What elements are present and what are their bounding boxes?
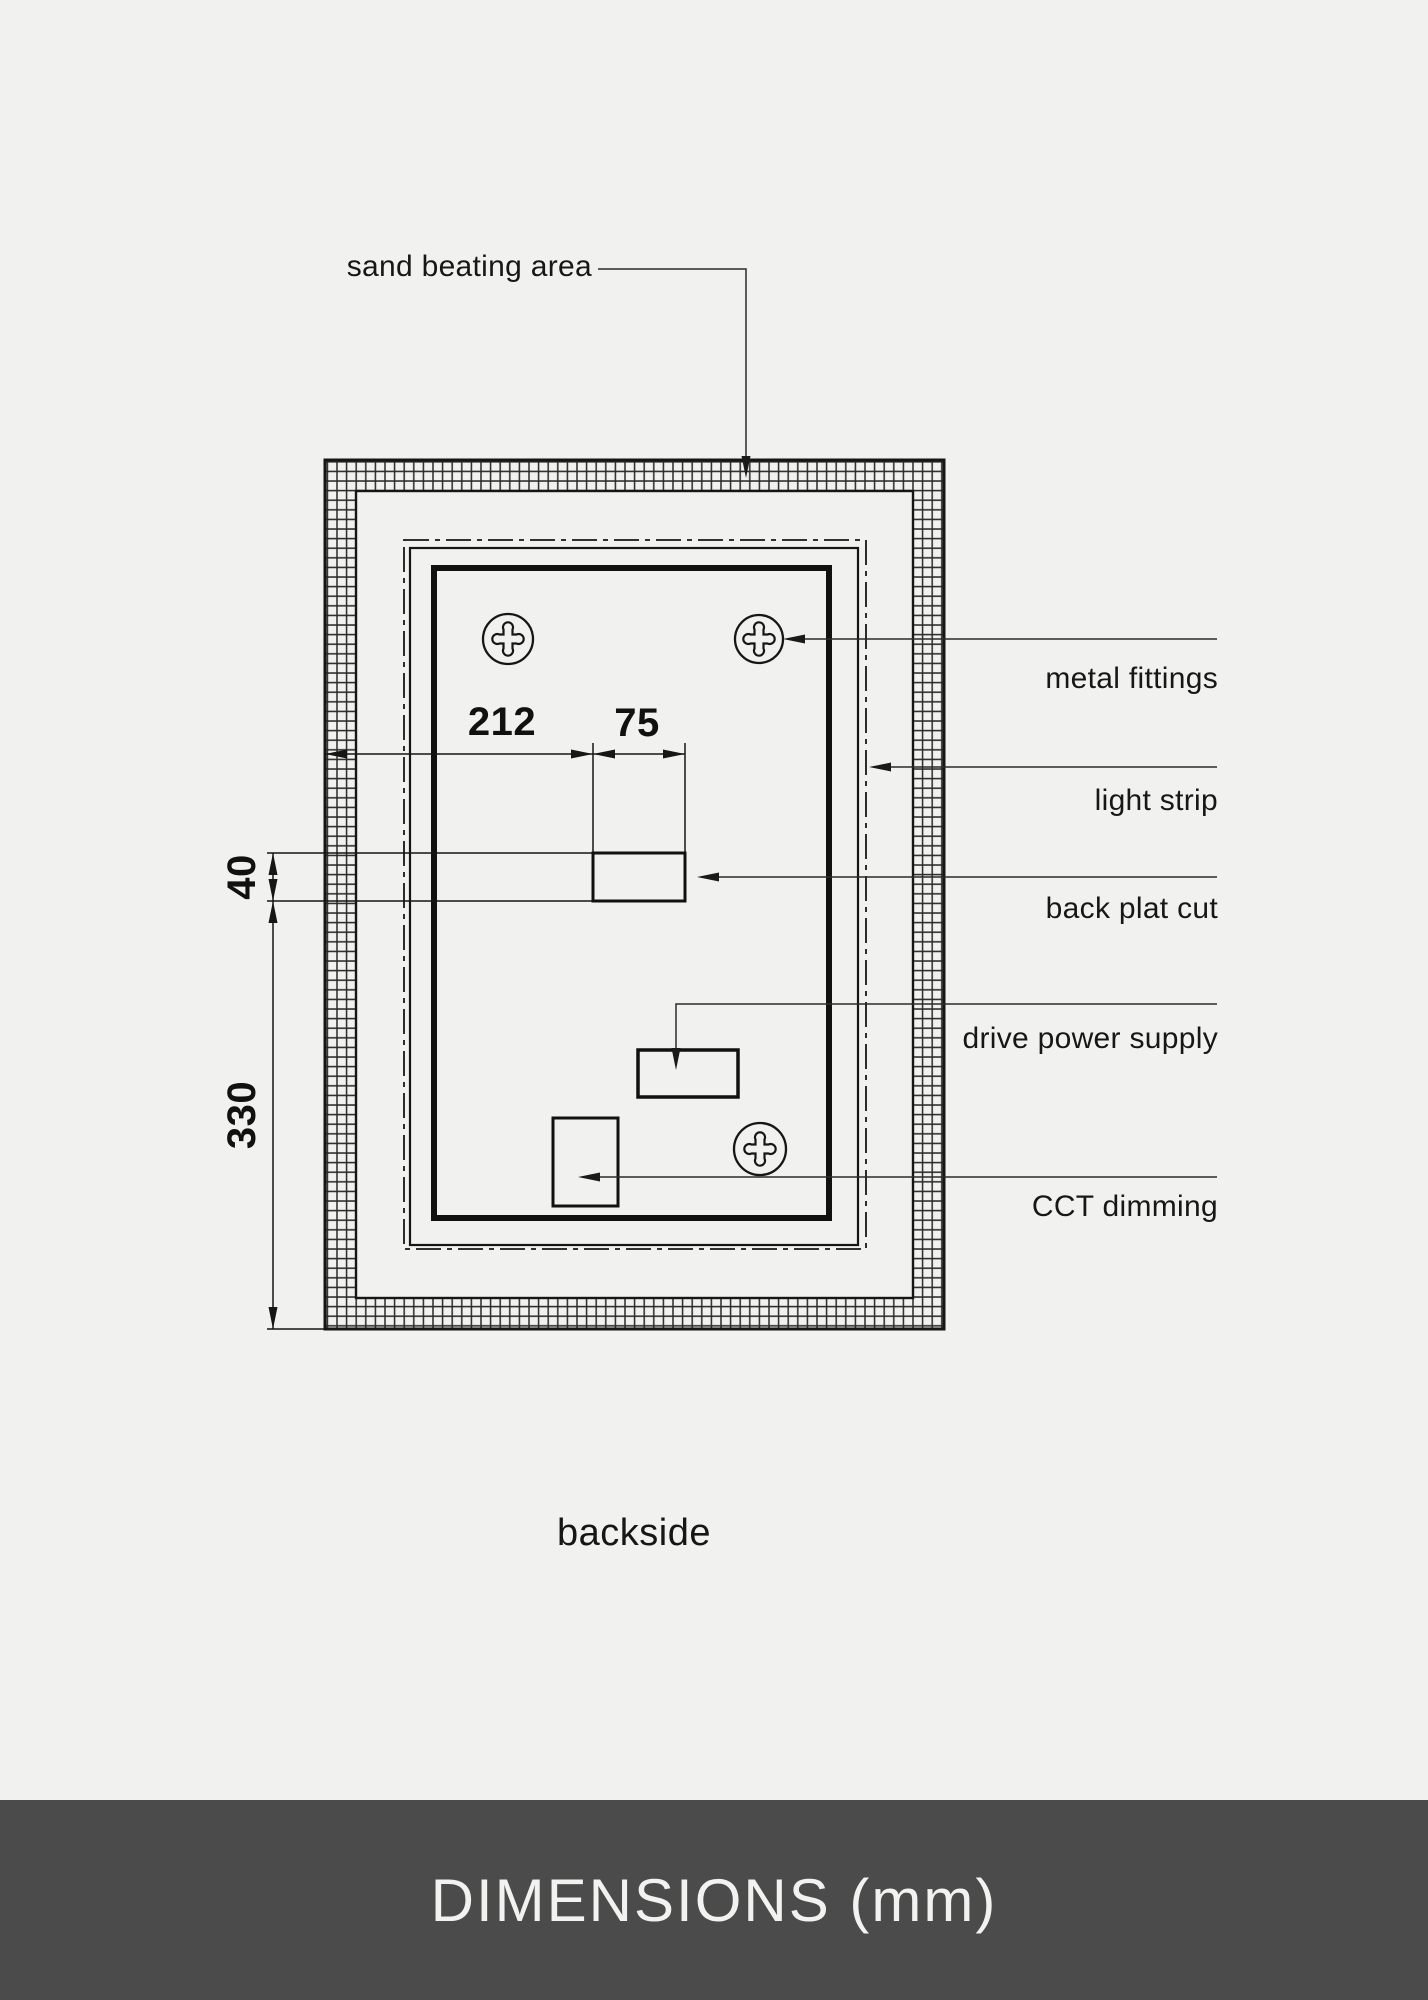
mirror-backside-drawing — [0, 0, 1428, 2000]
callout-back-plat-cut: back plat cut — [818, 892, 1218, 926]
callout-sand-beating-area: sand beating area — [292, 250, 592, 284]
dimension-75: 75 — [557, 700, 717, 746]
callout-light-strip: light strip — [818, 784, 1218, 818]
callout-cct-dimming: CCT dimming — [818, 1190, 1218, 1224]
dimensions-sheet: sand beating area metal fittings light s… — [0, 0, 1428, 2000]
footer-title: DIMENSIONS (mm) — [431, 1866, 998, 1935]
dimension-40: 40 — [217, 777, 267, 977]
callout-drive-power-supply: drive power supply — [818, 1022, 1218, 1056]
dimension-330: 330 — [217, 1015, 267, 1215]
callout-metal-fittings: metal fittings — [818, 662, 1218, 696]
footer-banner: DIMENSIONS (mm) — [0, 1800, 1428, 2000]
drawing-caption: backside — [484, 1510, 784, 1556]
